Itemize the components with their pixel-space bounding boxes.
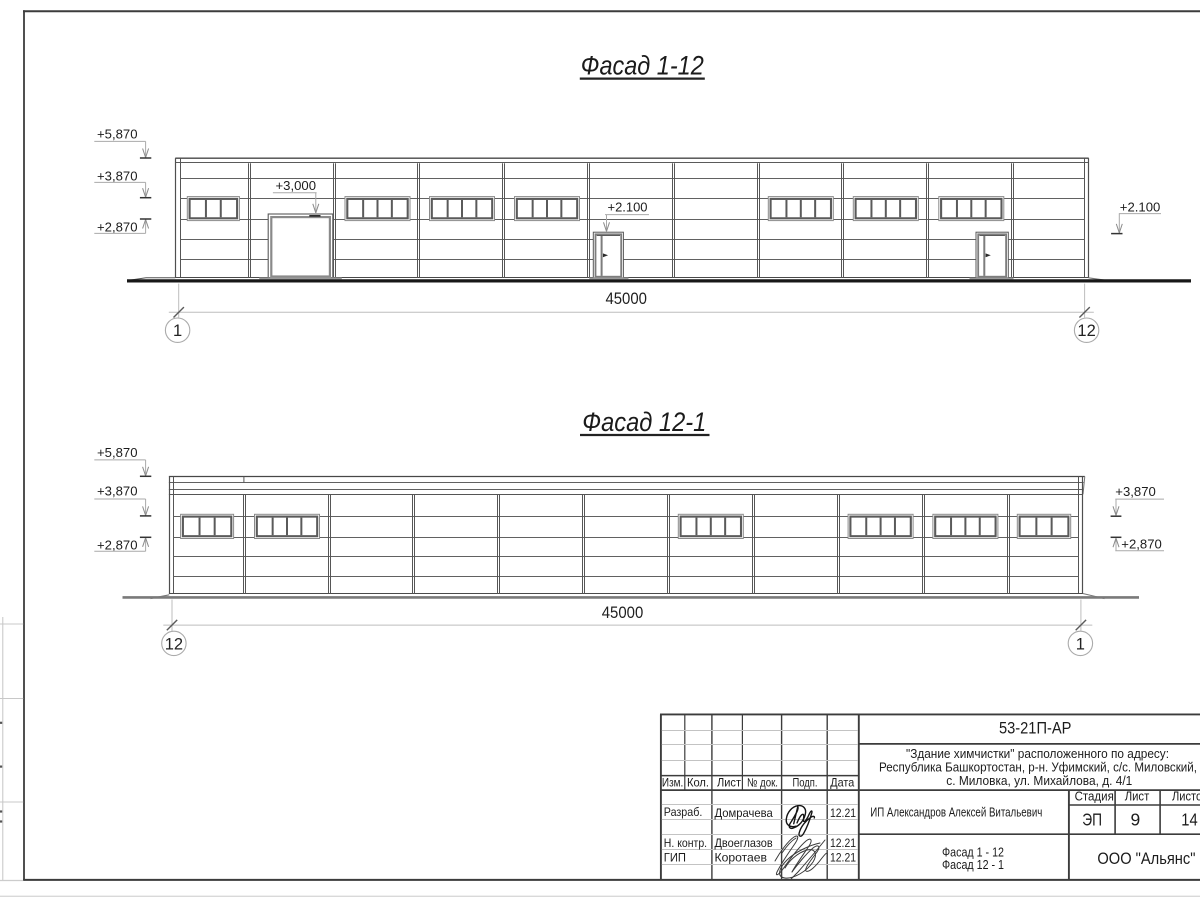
svg-text:Подп.: Подп. <box>793 776 818 790</box>
svg-text:+3,870: +3,870 <box>97 168 138 183</box>
svg-text:+5,870: +5,870 <box>97 127 138 142</box>
svg-text:14: 14 <box>1181 809 1198 829</box>
svg-text:+2,870: +2,870 <box>1121 536 1162 551</box>
svg-text:Н. контр.: Н. контр. <box>664 836 707 850</box>
svg-text:+2,870: +2,870 <box>97 537 138 552</box>
svg-text:12.21: 12.21 <box>830 850 856 864</box>
svg-text:Фасад 12 - 1: Фасад 12 - 1 <box>942 858 1004 872</box>
svg-text:12.21: 12.21 <box>830 806 856 820</box>
svg-text:Двоеглазов: Двоеглазов <box>715 836 773 850</box>
svg-text:с. Миловка, ул. Михайлова, д.: с. Миловка, ул. Михайлова, д. 4/1 <box>946 773 1132 788</box>
svg-text:Стадия: Стадия <box>1075 789 1114 803</box>
svg-text:Фасад 12-1: Фасад 12-1 <box>582 407 706 437</box>
svg-text:1: 1 <box>1076 635 1085 653</box>
svg-text:12.21: 12.21 <box>830 836 856 850</box>
svg-text:Дата: Дата <box>830 776 854 790</box>
svg-text:Домрачева: Домрачева <box>715 806 774 820</box>
svg-text:Коротаев: Коротаев <box>715 851 768 865</box>
svg-text:12: 12 <box>165 635 183 653</box>
svg-text:Листов: Листов <box>1172 789 1200 803</box>
svg-text:+2,870: +2,870 <box>97 219 138 234</box>
svg-text:ООО "Альянс": ООО "Альянс" <box>1097 849 1195 868</box>
svg-text:+2.100: +2.100 <box>608 200 648 215</box>
svg-text:+5,870: +5,870 <box>97 445 138 460</box>
svg-text:1: 1 <box>173 322 182 340</box>
svg-text:Кол.: Кол. <box>687 776 709 790</box>
svg-text:Лист: Лист <box>717 776 741 790</box>
svg-text:ЭП: ЭП <box>1082 809 1102 829</box>
svg-text:Разраб.: Разраб. <box>664 805 703 819</box>
svg-text:№ док.: № док. <box>747 776 778 790</box>
svg-text:12: 12 <box>1077 322 1095 340</box>
svg-text:45000: 45000 <box>602 604 644 622</box>
svg-text:9: 9 <box>1131 809 1141 829</box>
svg-text:ИП Александров Алексей Виталье: ИП Александров Алексей Витальевич <box>870 806 1042 820</box>
svg-text:45000: 45000 <box>605 290 647 308</box>
svg-text:+3,870: +3,870 <box>97 483 138 498</box>
svg-text:+3,870: +3,870 <box>1115 484 1156 499</box>
svg-text:53-21П-АР: 53-21П-АР <box>999 720 1072 738</box>
svg-text:+2.100: +2.100 <box>1120 200 1161 215</box>
svg-text:Изм.: Изм. <box>662 776 683 790</box>
svg-text:Фасад 1-12: Фасад 1-12 <box>581 51 704 81</box>
svg-text:ГИП: ГИП <box>664 850 686 864</box>
svg-text:Лист: Лист <box>1125 789 1150 803</box>
svg-text:+3,000: +3,000 <box>276 178 317 193</box>
